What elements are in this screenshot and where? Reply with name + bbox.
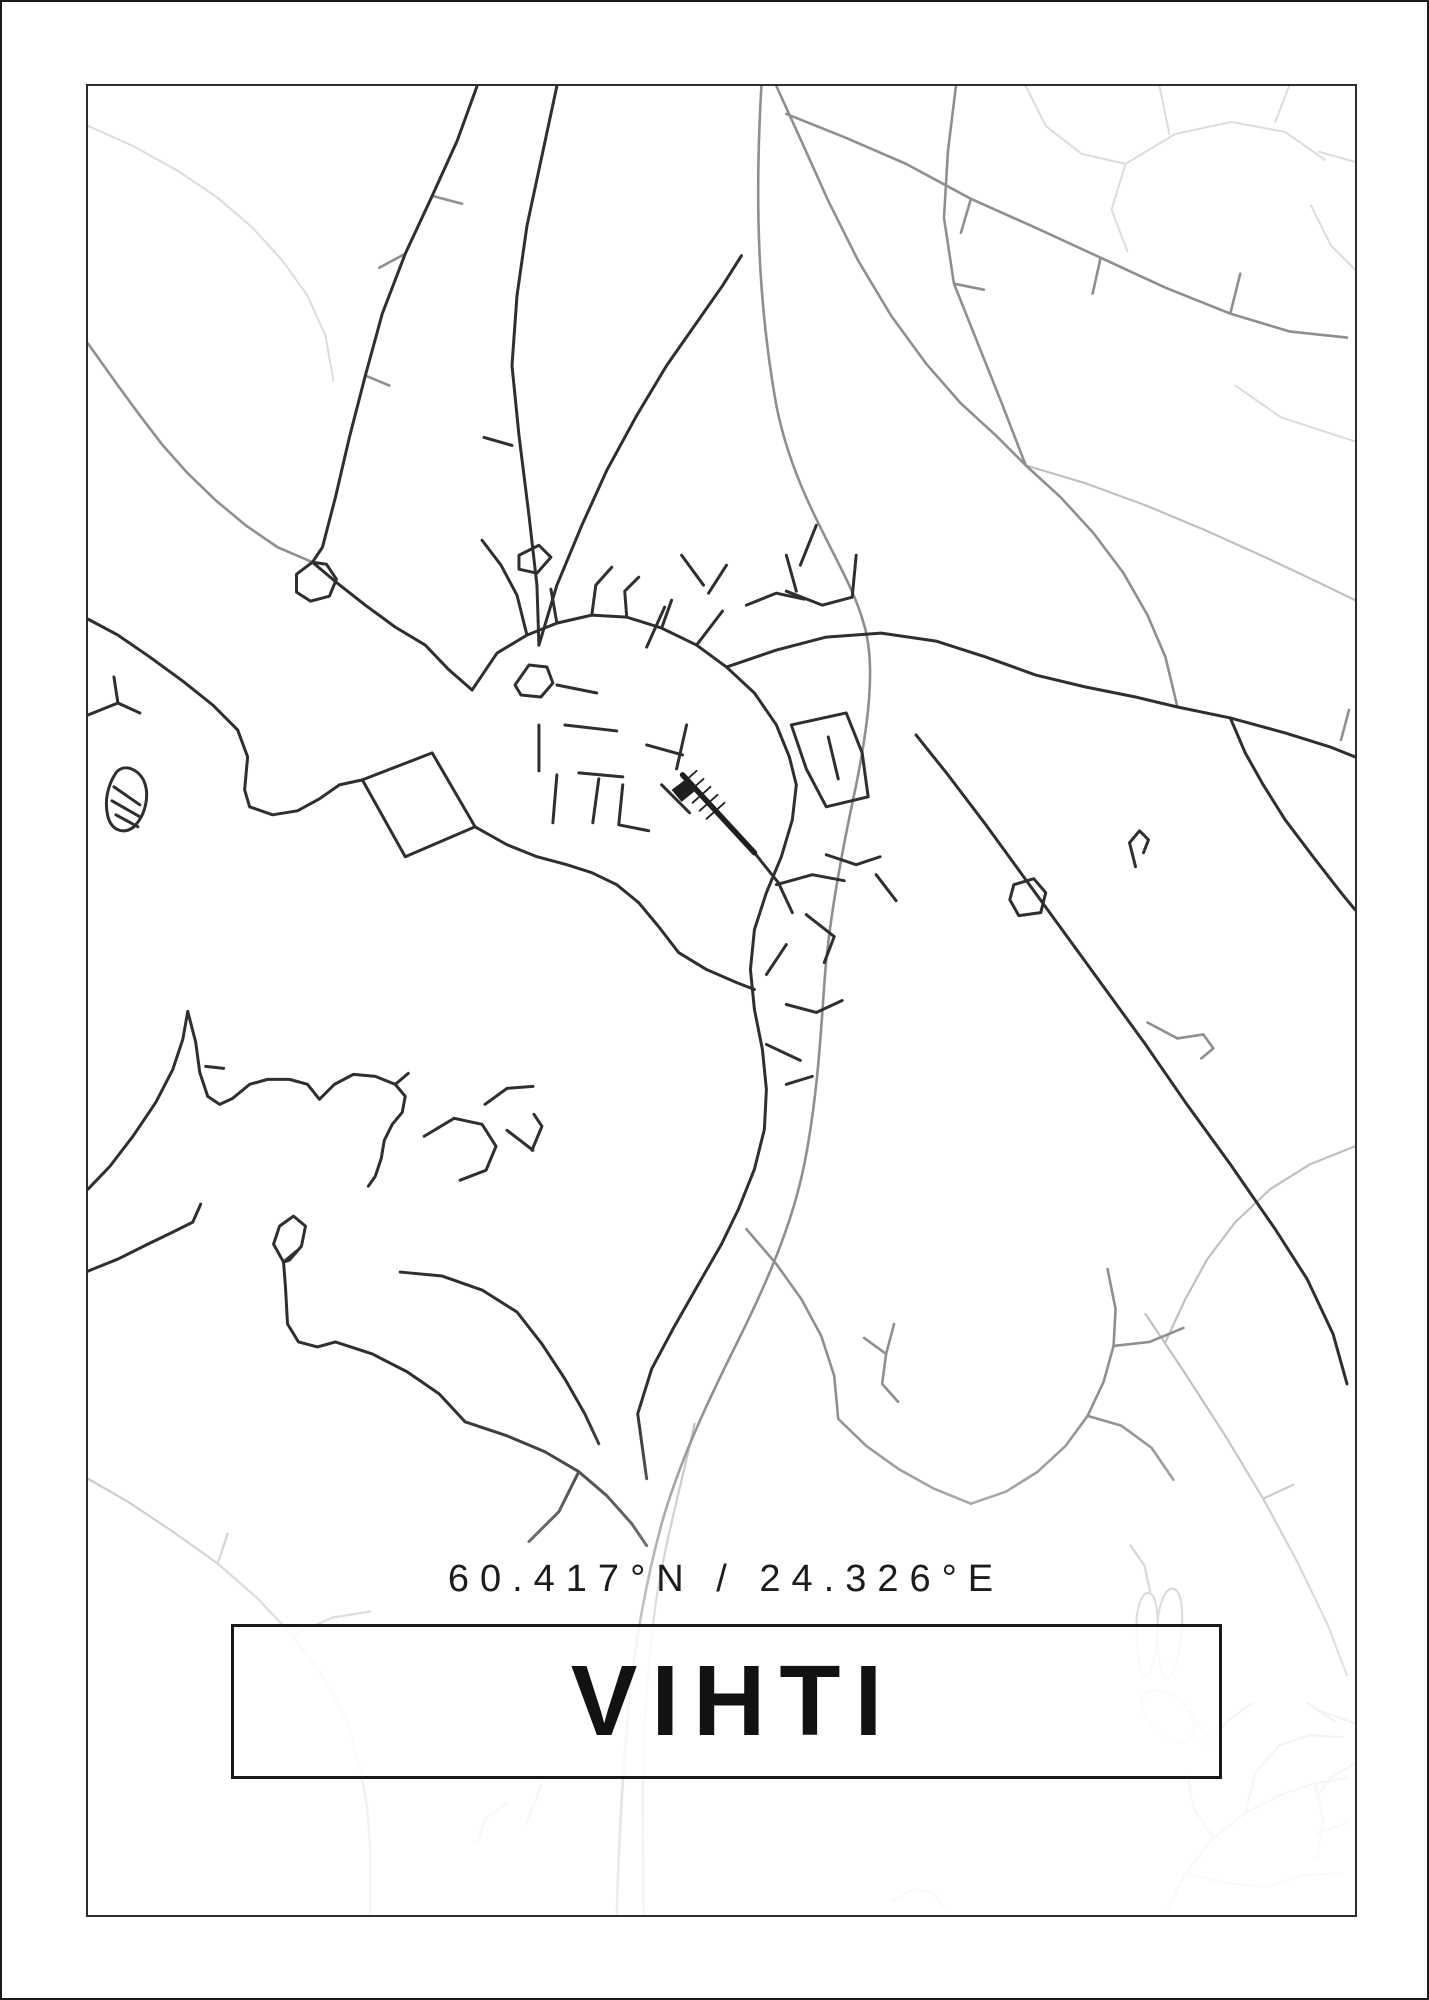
map-poster: 60.417°N / 24.326°E VIHTI [0, 0, 1429, 2000]
coordinates-label: 60.417°N / 24.326°E [448, 1558, 1004, 1601]
title-box: VIHTI [231, 1624, 1222, 1779]
title-text: VIHTI [557, 1644, 897, 1759]
